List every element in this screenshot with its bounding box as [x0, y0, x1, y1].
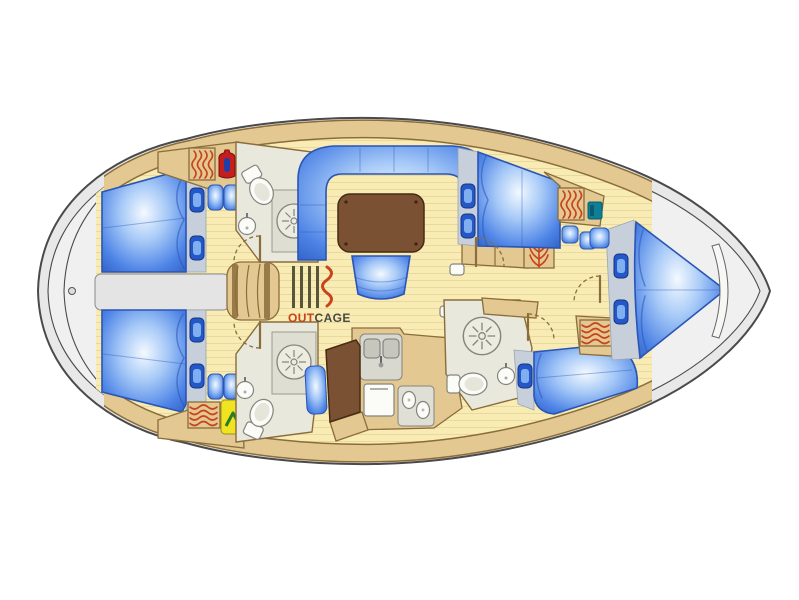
saloon-stool: [352, 256, 410, 299]
nav-seat-back: [326, 340, 360, 422]
faucet-base: [379, 363, 384, 368]
pillow-icon: [461, 184, 475, 208]
pillow-icon: [190, 364, 204, 388]
step-rail: [264, 263, 270, 319]
galley-sink-left: [364, 339, 380, 358]
red-jacket-icon: [219, 150, 235, 178]
burner-dot: [422, 409, 425, 412]
heater-icon: [189, 148, 215, 180]
teal-hatch-icon: [588, 202, 602, 219]
burner-dot: [408, 399, 411, 402]
pillow-icon: [190, 318, 204, 342]
pillow-icon: [190, 236, 204, 260]
engine-box: [95, 274, 229, 310]
pillow-icon: [614, 254, 628, 278]
pillow-icon: [614, 300, 628, 324]
shower-icon: [463, 317, 500, 354]
heater-icon: [580, 320, 612, 346]
seat-cushion-icon: [590, 228, 609, 248]
pillow-icon: [190, 188, 204, 212]
yacht-floor-plan: OUTCAGE: [0, 0, 799, 600]
seat-cushion-icon: [562, 226, 578, 243]
heater-icon: [558, 188, 584, 220]
galley-sink-right: [383, 339, 399, 358]
nav-seat-cushion: [305, 366, 327, 415]
door-stop: [450, 264, 464, 275]
pillow-icon: [518, 364, 532, 388]
heater-icon: [188, 402, 220, 428]
head-locker: [482, 298, 538, 318]
logo-text: OUTCAGE: [288, 311, 351, 325]
seat-cushion-icon: [208, 374, 223, 399]
step-rail: [232, 264, 238, 318]
porthole-icon: [69, 288, 76, 295]
toilet-icon: [447, 373, 487, 395]
pillow-icon: [461, 214, 475, 238]
yacht-floor-plan-canvas: OUTCAGE: [0, 0, 799, 600]
saloon-table: [338, 194, 424, 252]
seat-cushion-icon: [208, 185, 223, 210]
